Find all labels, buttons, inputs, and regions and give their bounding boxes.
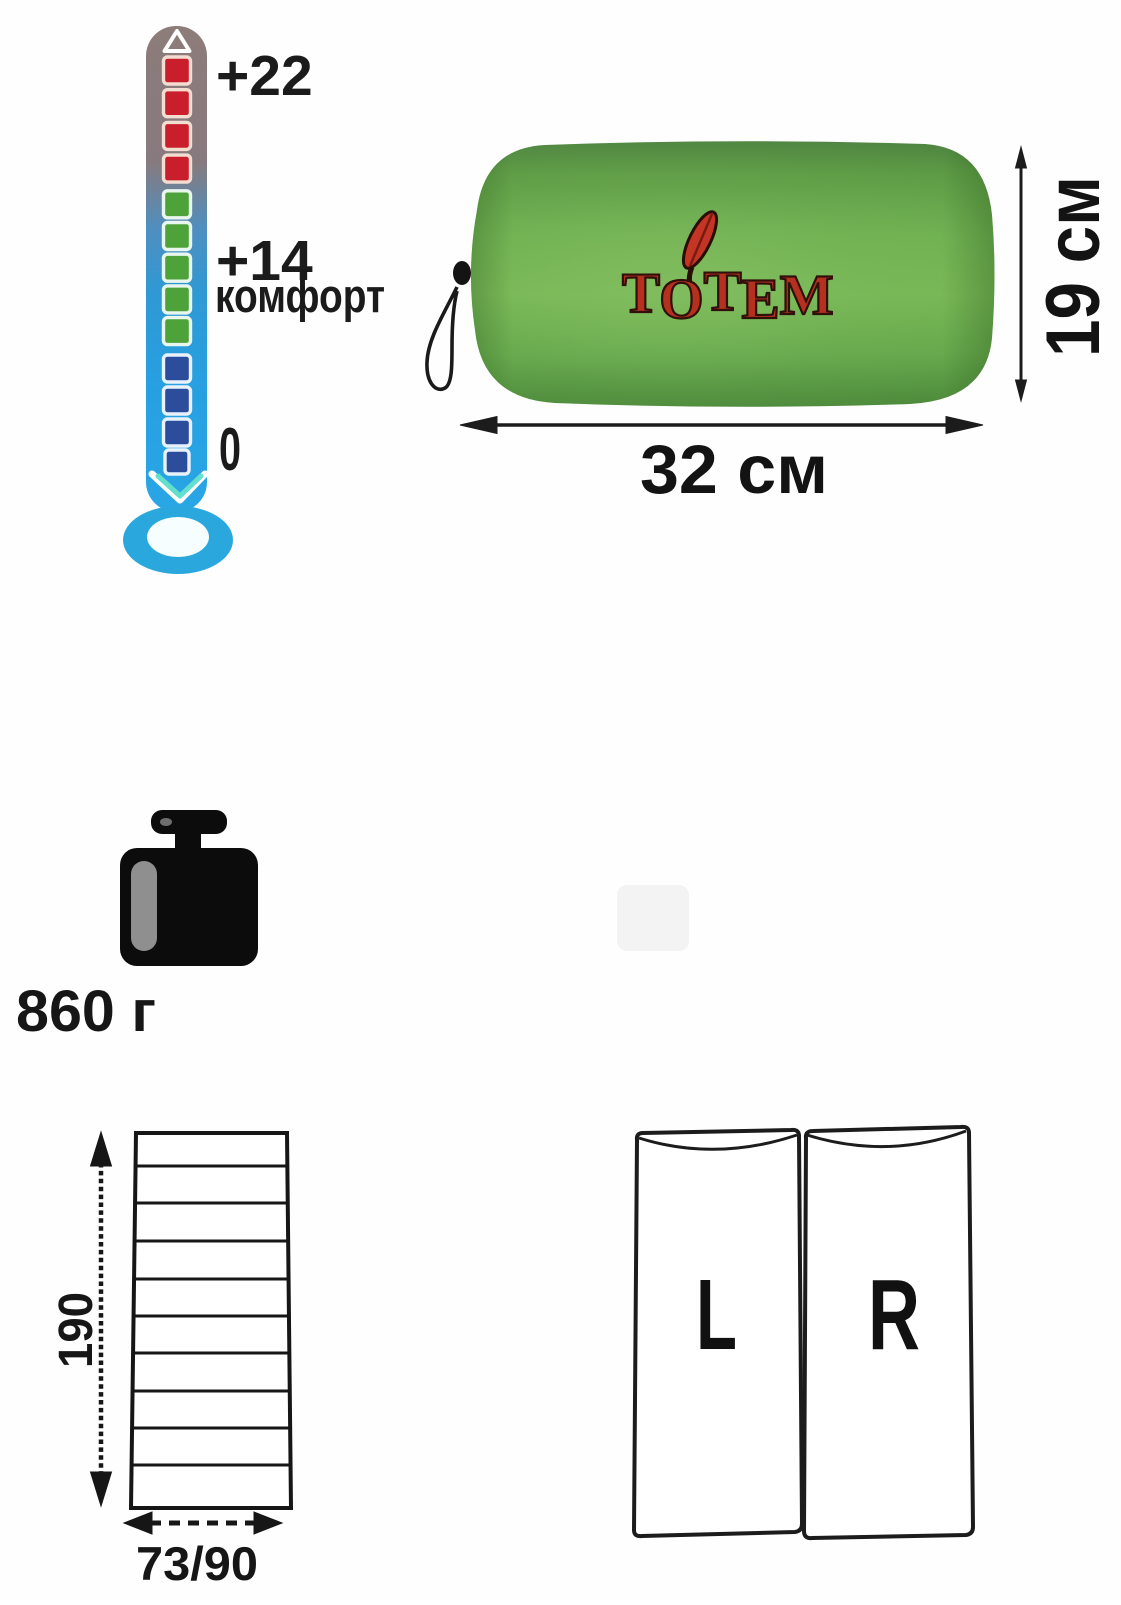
svg-text:860 г: 860 г (16, 979, 156, 1044)
svg-text:R: R (868, 1259, 920, 1371)
svg-text:190: 190 (50, 1292, 103, 1368)
svg-text:+22: +22 (216, 44, 313, 108)
svg-text:73/90: 73/90 (136, 1537, 258, 1590)
svg-text:0: 0 (219, 416, 241, 483)
svg-text:19 см: 19 см (1031, 176, 1116, 357)
svg-text:32 см: 32 см (640, 431, 828, 508)
svg-text:L: L (696, 1259, 737, 1371)
svg-text:комфорт: комфорт (215, 269, 385, 322)
svg-text:ТОТЕМ: ТОТЕМ (622, 260, 834, 331)
